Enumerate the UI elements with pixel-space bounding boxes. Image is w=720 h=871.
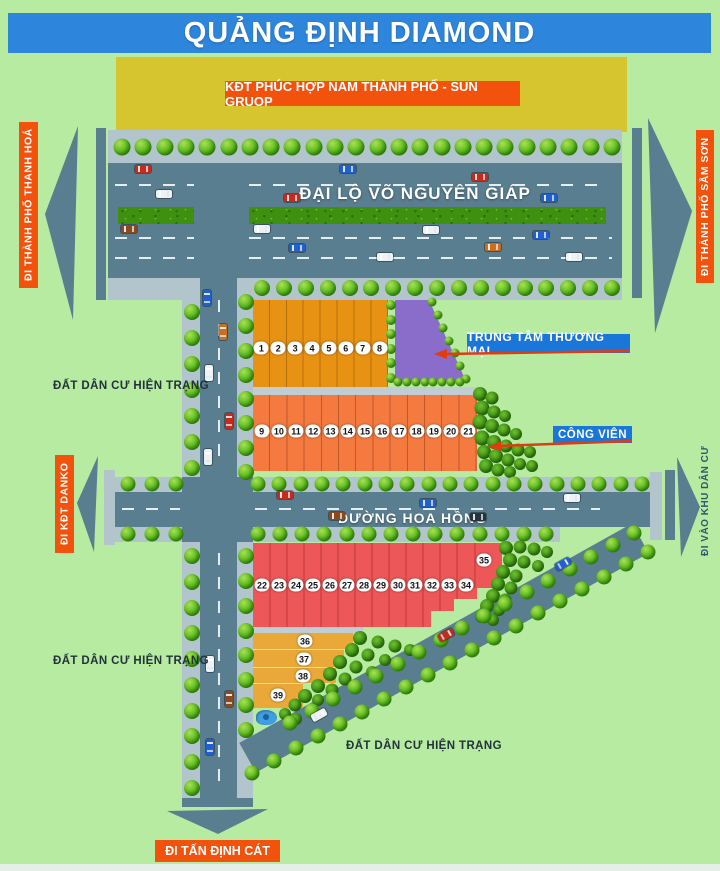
tree-icon bbox=[184, 728, 200, 744]
plot-number: 19 bbox=[426, 425, 441, 438]
tree-icon bbox=[293, 477, 308, 492]
bush-icon bbox=[499, 410, 511, 422]
plot-number: 21 bbox=[461, 425, 476, 438]
arrow-danko bbox=[77, 456, 98, 552]
car-icon bbox=[225, 691, 233, 707]
plot-number: 39 bbox=[271, 689, 286, 702]
car-icon bbox=[205, 365, 213, 381]
tree-icon bbox=[407, 280, 423, 296]
tree-icon bbox=[305, 139, 322, 156]
tree-icon bbox=[571, 477, 586, 492]
plot-number: 38 bbox=[296, 670, 311, 683]
median-hedge bbox=[249, 207, 606, 224]
existing-residential-label: ĐẤT DÂN CƯ HIỆN TRẠNG bbox=[53, 380, 209, 392]
tree-icon bbox=[184, 600, 200, 616]
plot-number: 11 bbox=[289, 425, 304, 438]
bush-icon bbox=[526, 460, 538, 472]
tree-icon bbox=[284, 139, 301, 156]
page-title: QUẢNG ĐỊNH DIAMOND bbox=[8, 13, 711, 53]
pond bbox=[256, 710, 277, 725]
tree-icon bbox=[238, 367, 254, 383]
tree-icon bbox=[184, 754, 200, 770]
plot-number: 15 bbox=[357, 425, 372, 438]
tree-icon bbox=[541, 573, 556, 588]
bush-icon bbox=[512, 444, 525, 457]
lane-dash bbox=[122, 508, 180, 510]
tree-icon bbox=[386, 300, 396, 310]
tree-icon bbox=[464, 477, 479, 492]
park-label: CÔNG VIÊN bbox=[553, 426, 632, 443]
tree-icon bbox=[327, 139, 344, 156]
tree-icon bbox=[455, 621, 470, 636]
car-icon bbox=[541, 194, 557, 202]
tree-icon bbox=[369, 139, 386, 156]
tree-icon bbox=[383, 527, 398, 542]
tree-icon bbox=[439, 323, 448, 332]
tree-icon bbox=[498, 597, 513, 612]
direction-east-banner: ĐI THÀNH PHỐ SẦM SƠN bbox=[696, 130, 714, 283]
tree-icon bbox=[295, 527, 310, 542]
tree-icon bbox=[238, 672, 254, 688]
bush-icon bbox=[532, 560, 544, 572]
car-icon bbox=[135, 165, 151, 173]
tree-icon bbox=[342, 280, 358, 296]
plot-number: 1 bbox=[254, 342, 269, 355]
tree-icon bbox=[561, 139, 578, 156]
plot-number: 33 bbox=[442, 579, 457, 592]
bush-icon bbox=[528, 543, 541, 556]
tree-icon bbox=[386, 315, 396, 325]
tree-icon bbox=[509, 618, 524, 633]
intersection-patch bbox=[182, 477, 253, 542]
plot-number: 31 bbox=[408, 579, 423, 592]
tree-icon bbox=[245, 766, 260, 781]
main-avenue-endcap-east bbox=[632, 128, 642, 298]
tree-icon bbox=[333, 716, 348, 731]
tree-icon bbox=[238, 722, 254, 738]
tree-icon bbox=[135, 139, 152, 156]
tree-icon bbox=[184, 356, 200, 372]
tree-icon bbox=[169, 477, 184, 492]
tree-icon bbox=[495, 280, 511, 296]
tree-icon bbox=[465, 643, 480, 658]
car-icon bbox=[203, 290, 211, 306]
tree-icon bbox=[177, 139, 194, 156]
tree-icon bbox=[399, 680, 414, 695]
tree-icon bbox=[445, 336, 454, 345]
tree-icon bbox=[121, 477, 136, 492]
tree-icon bbox=[238, 623, 254, 639]
tree-icon bbox=[184, 408, 200, 424]
tree-icon bbox=[347, 680, 362, 695]
commercial-center-block bbox=[395, 300, 466, 381]
tree-icon bbox=[326, 692, 341, 707]
tree-icon bbox=[497, 139, 514, 156]
tree-icon bbox=[560, 280, 576, 296]
tree-icon bbox=[528, 477, 543, 492]
car-icon bbox=[472, 173, 488, 181]
tree-icon bbox=[485, 477, 500, 492]
bush-icon bbox=[505, 582, 518, 595]
car-icon bbox=[566, 253, 582, 261]
bush-icon bbox=[333, 655, 347, 669]
tree-icon bbox=[438, 378, 447, 387]
tree-icon bbox=[433, 310, 442, 319]
lane-dash bbox=[115, 237, 194, 239]
tree-icon bbox=[238, 318, 254, 334]
tree-icon bbox=[411, 378, 420, 387]
existing-residential-label: ĐẤT DÂN CƯ HIỆN TRẠNG bbox=[346, 740, 502, 752]
tree-icon bbox=[289, 741, 304, 756]
plot-number: 16 bbox=[375, 425, 390, 438]
tree-icon bbox=[348, 139, 365, 156]
tree-icon bbox=[298, 280, 314, 296]
car-icon bbox=[284, 194, 300, 202]
bush-icon bbox=[510, 428, 522, 440]
tree-icon bbox=[540, 139, 557, 156]
lane-dash bbox=[115, 184, 194, 186]
tree-icon bbox=[386, 358, 396, 368]
tree-icon bbox=[538, 280, 554, 296]
tree-icon bbox=[238, 440, 254, 456]
tree-icon bbox=[357, 477, 372, 492]
tree-icon bbox=[283, 716, 298, 731]
tree-icon bbox=[421, 667, 436, 682]
tree-icon bbox=[317, 527, 332, 542]
bush-icon bbox=[372, 636, 385, 649]
car-icon bbox=[329, 512, 345, 520]
bush-icon bbox=[311, 679, 325, 693]
bush-icon bbox=[502, 454, 515, 467]
bush-icon bbox=[389, 640, 402, 653]
direction-south-banner: ĐI TẤN ĐỊNH CÁT bbox=[155, 840, 280, 862]
tree-icon bbox=[421, 477, 436, 492]
tree-icon bbox=[369, 668, 384, 683]
tree-icon bbox=[394, 378, 403, 387]
tree-icon bbox=[390, 139, 407, 156]
tree-icon bbox=[145, 527, 160, 542]
tree-icon bbox=[272, 477, 287, 492]
tree-icon bbox=[450, 527, 465, 542]
tree-icon bbox=[406, 527, 421, 542]
tree-icon bbox=[276, 280, 292, 296]
plot-number: 37 bbox=[297, 653, 312, 666]
bush-icon bbox=[345, 643, 359, 657]
tree-icon bbox=[429, 280, 445, 296]
tree-icon bbox=[273, 527, 288, 542]
arrow-east bbox=[648, 118, 692, 333]
tree-icon bbox=[507, 477, 522, 492]
bush-icon bbox=[518, 556, 531, 569]
plot-number: 36 bbox=[298, 635, 313, 648]
tree-icon bbox=[549, 477, 564, 492]
tree-icon bbox=[447, 378, 456, 387]
master-plan-map: QUẢNG ĐỊNH DIAMOND KĐT PHÚC HỢP NAM THÀN… bbox=[0, 0, 720, 871]
tree-icon bbox=[220, 139, 237, 156]
tree-icon bbox=[361, 527, 376, 542]
plot-number: 8 bbox=[372, 342, 387, 355]
tree-icon bbox=[635, 477, 650, 492]
tree-icon bbox=[400, 477, 415, 492]
plot-number: 34 bbox=[459, 579, 474, 592]
car-icon bbox=[485, 243, 501, 251]
tree-icon bbox=[241, 139, 258, 156]
plot-number: 17 bbox=[392, 425, 407, 438]
tree-icon bbox=[516, 527, 531, 542]
plot-number: 30 bbox=[391, 579, 406, 592]
tree-icon bbox=[487, 630, 502, 645]
bush-icon bbox=[514, 541, 527, 554]
tree-icon bbox=[121, 527, 136, 542]
tree-icon bbox=[315, 477, 330, 492]
tree-icon bbox=[604, 280, 620, 296]
tree-icon bbox=[641, 545, 656, 560]
tree-icon bbox=[114, 139, 131, 156]
tree-icon bbox=[454, 139, 471, 156]
tree-icon bbox=[238, 647, 254, 663]
plot-number: 27 bbox=[340, 579, 355, 592]
tree-icon bbox=[429, 378, 438, 387]
bush-icon bbox=[514, 458, 526, 470]
plot-number: 10 bbox=[271, 425, 286, 438]
bush-icon bbox=[289, 699, 302, 712]
car-icon bbox=[377, 253, 393, 261]
tree-icon bbox=[251, 527, 266, 542]
plot-number: 24 bbox=[289, 579, 304, 592]
plot-number: 9 bbox=[254, 425, 269, 438]
tree-icon bbox=[476, 139, 493, 156]
car-icon bbox=[470, 513, 486, 521]
tree-icon bbox=[531, 606, 546, 621]
plot-number: 4 bbox=[305, 342, 320, 355]
tree-icon bbox=[539, 527, 554, 542]
vertical-road-endcap-south bbox=[182, 798, 253, 807]
tree-icon bbox=[592, 477, 607, 492]
rose-street-bar-east bbox=[665, 470, 675, 540]
tree-icon bbox=[254, 280, 270, 296]
tree-icon bbox=[476, 609, 491, 624]
tree-icon bbox=[156, 139, 173, 156]
lane-dash bbox=[115, 257, 194, 259]
arrow-residential bbox=[677, 457, 700, 557]
tree-icon bbox=[379, 477, 394, 492]
plot-number: 29 bbox=[374, 579, 389, 592]
image-bottom-strip bbox=[0, 864, 720, 871]
tree-icon bbox=[456, 378, 465, 387]
bush-icon bbox=[498, 424, 511, 437]
bush-icon bbox=[323, 667, 337, 681]
tree-icon bbox=[473, 280, 489, 296]
tree-icon bbox=[363, 280, 379, 296]
tree-icon bbox=[412, 644, 427, 659]
tree-icon bbox=[199, 139, 216, 156]
tree-icon bbox=[336, 477, 351, 492]
main-avenue-endcap-west bbox=[96, 128, 106, 300]
tree-icon bbox=[238, 294, 254, 310]
plot-number: 23 bbox=[272, 579, 287, 592]
tree-icon bbox=[184, 625, 200, 641]
car-icon bbox=[204, 449, 212, 465]
tree-icon bbox=[355, 704, 370, 719]
tree-icon bbox=[263, 139, 280, 156]
tree-icon bbox=[311, 729, 326, 744]
car-icon bbox=[121, 225, 137, 233]
car-icon bbox=[156, 190, 172, 198]
tree-icon bbox=[443, 655, 458, 670]
tree-icon bbox=[575, 581, 590, 596]
existing-residential-label: ĐẤT DÂN CƯ HIỆN TRẠNG bbox=[53, 655, 209, 667]
tree-icon bbox=[385, 280, 401, 296]
plot-number: 7 bbox=[355, 342, 370, 355]
plot-number: 22 bbox=[255, 579, 270, 592]
tree-icon bbox=[320, 280, 336, 296]
car-icon bbox=[533, 231, 549, 239]
tree-icon bbox=[428, 298, 437, 307]
plot-number: 3 bbox=[288, 342, 303, 355]
tree-icon bbox=[428, 527, 443, 542]
tree-icon bbox=[604, 139, 621, 156]
plot-number: 20 bbox=[444, 425, 459, 438]
tree-icon bbox=[433, 139, 450, 156]
rose-street-endcap-west bbox=[104, 470, 115, 545]
car-icon bbox=[289, 244, 305, 252]
car-icon bbox=[564, 494, 580, 502]
tree-icon bbox=[517, 280, 533, 296]
tree-icon bbox=[390, 656, 405, 671]
tree-icon bbox=[377, 692, 392, 707]
plot-number: 12 bbox=[306, 425, 321, 438]
tree-icon bbox=[494, 527, 509, 542]
tree-icon bbox=[339, 527, 354, 542]
bush-icon bbox=[362, 649, 375, 662]
direction-west-banner: ĐI THÀNH PHỐ THANH HOÁ bbox=[19, 122, 38, 288]
plot-number: 18 bbox=[409, 425, 424, 438]
tree-icon bbox=[169, 527, 184, 542]
plot-number: 6 bbox=[338, 342, 353, 355]
car-icon bbox=[277, 491, 293, 499]
tree-icon bbox=[184, 434, 200, 450]
plot-number: 13 bbox=[323, 425, 338, 438]
plot-number: 26 bbox=[323, 579, 338, 592]
plot-number: 25 bbox=[306, 579, 321, 592]
plot-number: 32 bbox=[425, 579, 440, 592]
tree-icon bbox=[238, 598, 254, 614]
tree-icon bbox=[402, 378, 411, 387]
bush-icon bbox=[524, 446, 536, 458]
tree-icon bbox=[184, 780, 200, 796]
car-icon bbox=[420, 499, 436, 507]
arrow-west bbox=[45, 126, 78, 320]
bush-icon bbox=[492, 464, 505, 477]
tree-icon bbox=[518, 139, 535, 156]
lane-dash bbox=[218, 553, 220, 793]
tree-icon bbox=[238, 464, 254, 480]
kdt-block-label: KĐT PHÚC HỢP NAM THÀNH PHỐ - SUN GRUOP bbox=[225, 81, 520, 106]
tree-icon bbox=[184, 574, 200, 590]
tree-icon bbox=[584, 549, 599, 564]
tree-icon bbox=[619, 557, 634, 572]
tree-icon bbox=[267, 753, 282, 768]
tree-icon bbox=[184, 548, 200, 564]
direction-residential-label: ĐI VÀO KHU DÂN CƯ bbox=[700, 452, 711, 556]
direction-danko-banner: ĐI KĐT DANKO bbox=[55, 455, 74, 553]
tree-icon bbox=[605, 537, 620, 552]
car-icon bbox=[225, 413, 233, 429]
main-avenue-sidewalk-bottom-left bbox=[108, 278, 183, 300]
tree-icon bbox=[412, 139, 429, 156]
tree-icon bbox=[386, 344, 396, 354]
car-icon bbox=[206, 739, 214, 755]
tree-icon bbox=[238, 343, 254, 359]
lane-dash bbox=[249, 237, 612, 239]
arrow-south bbox=[167, 809, 268, 834]
tree-icon bbox=[184, 304, 200, 320]
plot-number: 5 bbox=[321, 342, 336, 355]
tree-icon bbox=[238, 548, 254, 564]
tree-icon bbox=[443, 477, 458, 492]
tree-icon bbox=[613, 477, 628, 492]
tree-icon bbox=[238, 697, 254, 713]
car-icon bbox=[254, 225, 270, 233]
median-hedge bbox=[118, 207, 194, 224]
lane-dash bbox=[249, 257, 612, 259]
plot-number: 35 bbox=[477, 554, 492, 567]
tree-icon bbox=[582, 280, 598, 296]
rose-street-endcap-east bbox=[650, 472, 662, 540]
plot-number: 2 bbox=[271, 342, 286, 355]
tree-icon bbox=[597, 569, 612, 584]
car-icon bbox=[340, 165, 356, 173]
tree-icon bbox=[238, 391, 254, 407]
plot-number: 14 bbox=[340, 425, 355, 438]
tree-icon bbox=[184, 703, 200, 719]
tree-icon bbox=[456, 362, 465, 371]
tree-icon bbox=[251, 477, 266, 492]
tree-icon bbox=[184, 330, 200, 346]
tree-icon bbox=[553, 594, 568, 609]
tree-icon bbox=[582, 139, 599, 156]
tree-icon bbox=[184, 677, 200, 693]
tree-icon bbox=[238, 415, 254, 431]
alley bbox=[253, 387, 477, 395]
tree-icon bbox=[627, 526, 642, 541]
plot-number: 28 bbox=[357, 579, 372, 592]
tree-icon bbox=[472, 527, 487, 542]
tree-icon bbox=[238, 573, 254, 589]
tree-icon bbox=[145, 477, 160, 492]
tree-icon bbox=[420, 378, 429, 387]
tree-icon bbox=[451, 280, 467, 296]
car-icon bbox=[423, 226, 439, 234]
car-icon bbox=[219, 324, 227, 340]
bush-icon bbox=[350, 661, 363, 674]
tree-icon bbox=[519, 585, 534, 600]
tree-icon bbox=[386, 329, 396, 339]
commercial-center-label: TRUNG TÂM THƯƠNG MẠI bbox=[467, 334, 630, 353]
bush-icon bbox=[541, 546, 553, 558]
tree-icon bbox=[184, 460, 200, 476]
tree-icon bbox=[450, 349, 459, 358]
